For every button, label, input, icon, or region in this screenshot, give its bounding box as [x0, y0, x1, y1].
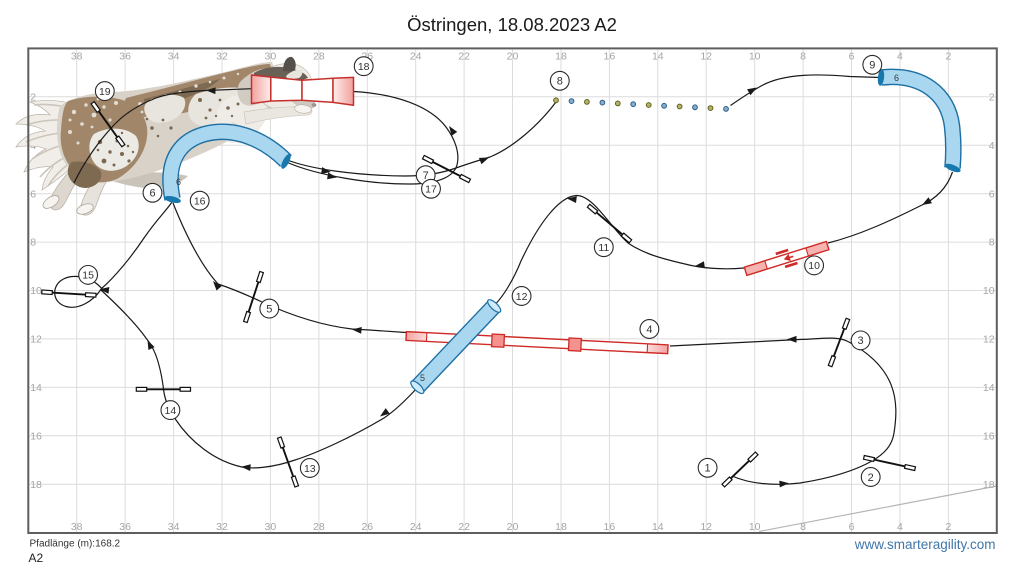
svg-text:18: 18 — [983, 479, 995, 491]
svg-text:14: 14 — [652, 51, 664, 63]
svg-text:30: 30 — [265, 521, 277, 533]
svg-text:6: 6 — [894, 73, 899, 83]
svg-text:6: 6 — [849, 521, 855, 533]
svg-text:20: 20 — [507, 51, 519, 63]
svg-text:16: 16 — [604, 51, 616, 63]
svg-text:22: 22 — [458, 521, 470, 533]
svg-text:2: 2 — [989, 91, 995, 103]
svg-text:30: 30 — [265, 51, 277, 63]
svg-text:19: 19 — [99, 86, 111, 98]
svg-text:18: 18 — [555, 51, 567, 63]
svg-text:2: 2 — [945, 521, 951, 533]
svg-text:A2: A2 — [29, 551, 44, 565]
svg-text:12: 12 — [30, 334, 42, 346]
svg-text:34: 34 — [168, 51, 180, 63]
svg-text:10: 10 — [749, 51, 761, 63]
svg-text:12: 12 — [700, 51, 712, 63]
svg-text:8: 8 — [30, 237, 36, 249]
svg-text:15: 15 — [82, 270, 94, 282]
svg-text:14: 14 — [165, 405, 177, 417]
svg-text:12: 12 — [983, 334, 995, 346]
svg-text:14: 14 — [652, 521, 664, 533]
svg-text:10: 10 — [30, 285, 42, 297]
svg-text:5: 5 — [420, 373, 425, 383]
svg-text:18: 18 — [30, 479, 42, 491]
svg-text:6: 6 — [30, 188, 36, 200]
svg-text:14: 14 — [983, 382, 995, 394]
svg-text:3: 3 — [858, 335, 864, 347]
svg-text:Pfadlänge (m):168.2: Pfadlänge (m):168.2 — [30, 539, 121, 550]
svg-text:28: 28 — [313, 521, 325, 533]
svg-text:6: 6 — [989, 188, 995, 200]
svg-text:36: 36 — [119, 51, 131, 63]
svg-text:8: 8 — [989, 237, 995, 249]
svg-text:6: 6 — [849, 51, 855, 63]
svg-text:8: 8 — [557, 76, 563, 88]
svg-text:13: 13 — [304, 463, 316, 475]
svg-text:12: 12 — [700, 521, 712, 533]
svg-text:26: 26 — [361, 521, 373, 533]
svg-text:32: 32 — [216, 521, 228, 533]
svg-text:36: 36 — [119, 521, 131, 533]
svg-text:18: 18 — [555, 521, 567, 533]
svg-text:6: 6 — [149, 188, 155, 200]
svg-text:2: 2 — [945, 51, 951, 63]
svg-text:4: 4 — [897, 521, 903, 533]
svg-text:10: 10 — [808, 260, 820, 272]
svg-text:6: 6 — [176, 177, 181, 187]
svg-text:9: 9 — [869, 60, 875, 72]
svg-text:24: 24 — [410, 521, 422, 533]
svg-text:12: 12 — [516, 291, 528, 303]
svg-text:16: 16 — [194, 196, 206, 208]
svg-text:10: 10 — [983, 285, 995, 297]
svg-text:1: 1 — [705, 463, 711, 475]
svg-text:34: 34 — [168, 521, 180, 533]
svg-text:32: 32 — [216, 51, 228, 63]
svg-text:38: 38 — [71, 521, 83, 533]
svg-text:16: 16 — [983, 430, 995, 442]
svg-text:2: 2 — [868, 472, 874, 484]
svg-text:4: 4 — [989, 140, 995, 152]
svg-text:28: 28 — [313, 51, 325, 63]
svg-text:17: 17 — [425, 184, 437, 196]
svg-text:38: 38 — [71, 51, 83, 63]
svg-text:18: 18 — [358, 61, 370, 73]
svg-text:4: 4 — [897, 51, 903, 63]
svg-text:24: 24 — [410, 51, 422, 63]
svg-text:8: 8 — [800, 51, 806, 63]
svg-text:www.smarteragility.com: www.smarteragility.com — [854, 537, 996, 552]
svg-text:11: 11 — [598, 242, 609, 254]
svg-text:4: 4 — [646, 324, 652, 336]
svg-text:Östringen, 18.08.2023 A2: Östringen, 18.08.2023 A2 — [407, 14, 617, 35]
svg-text:16: 16 — [30, 430, 42, 442]
svg-text:14: 14 — [30, 382, 42, 394]
svg-text:16: 16 — [604, 521, 616, 533]
svg-text:22: 22 — [458, 51, 470, 63]
svg-text:5: 5 — [266, 303, 272, 315]
svg-text:20: 20 — [507, 521, 519, 533]
